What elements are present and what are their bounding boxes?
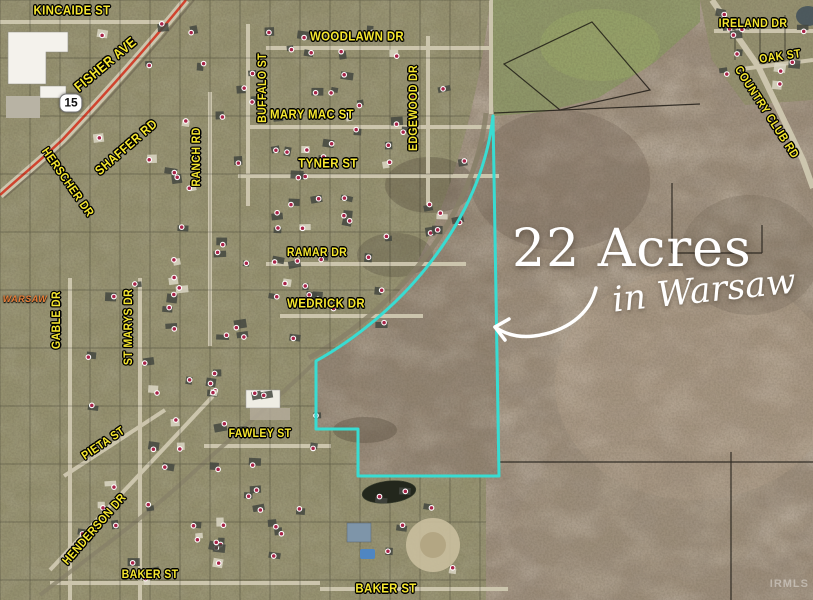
pool [360,549,375,559]
street-label-ramar-dr: RAMAR DR [287,246,347,258]
street-label-fawley-st: FAWLEY ST [229,427,292,439]
street-label-woodlawn-dr: WOODLAWN DR [310,30,404,43]
mls-watermark: IRMLS [770,578,809,590]
parking-lot [6,96,40,118]
street-label-gable-dr: GABLE DR [50,291,62,349]
city-label-warsaw: WARSAW [3,294,48,304]
blue-roof-building [347,523,371,542]
street-label-tyner-st: TYNER ST [298,157,357,170]
street-label-baker-st-east: BAKER ST [355,582,416,595]
street-label-edgewood-dr: EDGEWOOD DR [407,65,419,151]
street-label-ranch-rd: RANCH RD [190,127,202,186]
street-label-wedrick-dr: WEDRICK DR [287,297,365,310]
street-label-ireland-dr: IRELAND DR [719,17,788,29]
street-label-st-marys-dr: ST MARYS DR [122,289,134,365]
highway-15-shield: 15 [59,94,82,113]
listing-image: KINCAIDE STWOODLAWN DRIRELAND DROAK STCO… [0,0,813,600]
street-label-mary-mac-st: MARY MAC ST [270,108,354,121]
street-label-baker-st-west: BAKER ST [122,568,179,580]
street-label-kincaide-st: KINCAIDE ST [34,4,111,17]
acreage-headline: 22 Acres [512,222,752,277]
street-label-buffalo-st: BUFFALO ST [256,53,268,123]
